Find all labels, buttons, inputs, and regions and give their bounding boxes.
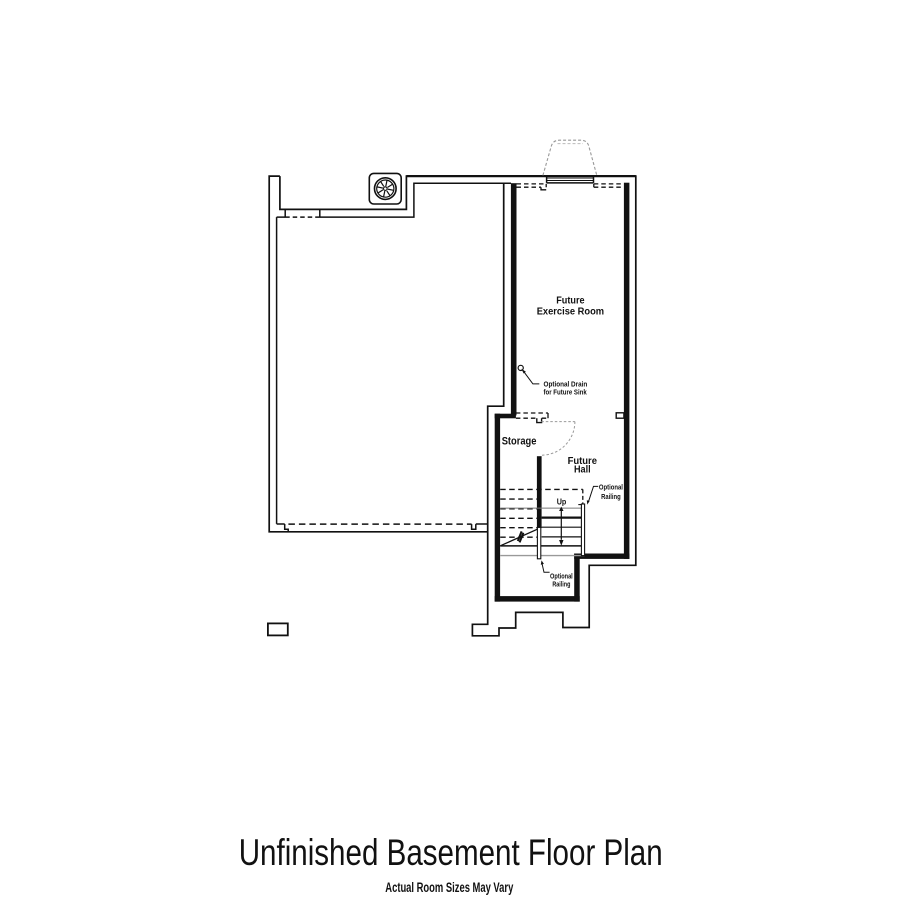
svg-text:Railing: Railing [552,582,570,589]
svg-text:Optional: Optional [599,484,623,491]
svg-text:Hall: Hall [574,464,591,476]
svg-text:for Future Sink: for Future Sink [544,390,587,397]
svg-text:Storage: Storage [502,436,537,448]
svg-text:Up: Up [557,496,567,506]
svg-text:Railing: Railing [601,494,621,501]
svg-text:Optional: Optional [550,574,573,581]
svg-text:Optional Drain: Optional Drain [544,381,588,388]
svg-text:Unfinished Basement Floor Plan: Unfinished Basement Floor Plan [239,832,663,873]
svg-text:Future: Future [556,296,585,307]
svg-text:Exercise Room: Exercise Room [537,306,604,317]
svg-text:Actual Room Sizes May Vary: Actual Room Sizes May Vary [385,880,513,896]
